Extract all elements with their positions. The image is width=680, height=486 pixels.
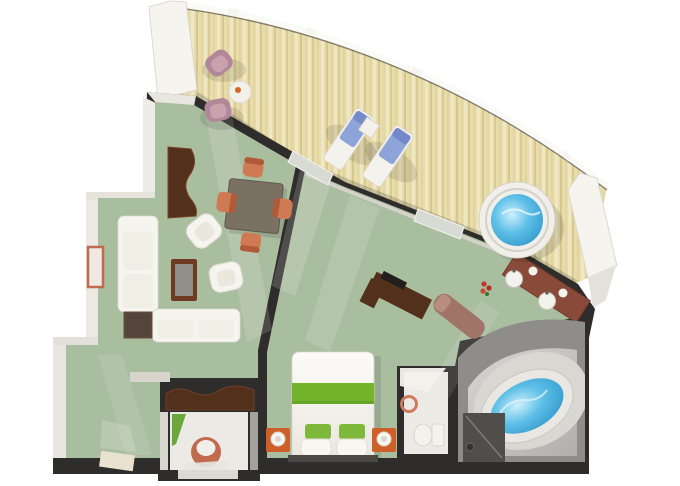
bed-pillow-white — [301, 439, 331, 456]
toilet-room — [400, 368, 448, 454]
toilet-tank — [432, 424, 444, 446]
wall-picture — [88, 247, 103, 287]
vanity-faucet — [512, 269, 515, 272]
bed-pillow-green — [339, 424, 365, 439]
dining-chair — [216, 191, 238, 213]
bed-pillow-green — [305, 424, 331, 439]
dining-chair — [239, 232, 261, 254]
chaise-cushion — [198, 320, 234, 338]
vanity-plate — [529, 267, 538, 276]
sofa-cushion — [123, 274, 153, 308]
flower-leaf — [485, 292, 489, 296]
shower-drain — [466, 443, 474, 451]
flower — [486, 285, 491, 290]
hot-tub-water — [491, 194, 543, 246]
wc-wall-face-right — [250, 412, 258, 470]
entry-west-wall-face — [53, 345, 66, 458]
floor-plan-svg — [0, 0, 680, 486]
bathroom — [457, 320, 605, 469]
bed-pillow-white — [337, 439, 367, 456]
toilet-bowl — [414, 424, 432, 446]
nightstand-lamp-top — [381, 436, 387, 442]
vanity-sink — [506, 271, 523, 288]
bed-headboard — [288, 455, 378, 462]
entry-step-face — [53, 337, 98, 346]
dining-chair — [272, 197, 294, 219]
west-wall-face-upper — [143, 97, 156, 198]
wc-wall-face-left — [160, 412, 168, 470]
nightstand-lamp-top — [275, 436, 281, 442]
vanity-plate — [559, 289, 568, 298]
floor-plan-image — [0, 0, 680, 486]
sofa-cushion — [123, 232, 153, 270]
bed-runner-shade — [292, 401, 374, 404]
vanity-sink — [539, 293, 556, 310]
coffee-table-glass — [175, 264, 193, 296]
table-item — [235, 87, 241, 93]
flower — [481, 281, 486, 286]
flower — [480, 288, 485, 293]
hall-wall-ledge — [130, 372, 170, 382]
chaise-cushion — [158, 320, 194, 338]
side-table — [124, 312, 152, 338]
wc-door — [178, 470, 238, 479]
vanity-faucet — [545, 291, 548, 294]
wc-washbasin-bowl — [197, 440, 216, 456]
guest-wc — [160, 412, 258, 479]
dining-chair — [242, 157, 264, 179]
bed-runner — [292, 383, 374, 404]
